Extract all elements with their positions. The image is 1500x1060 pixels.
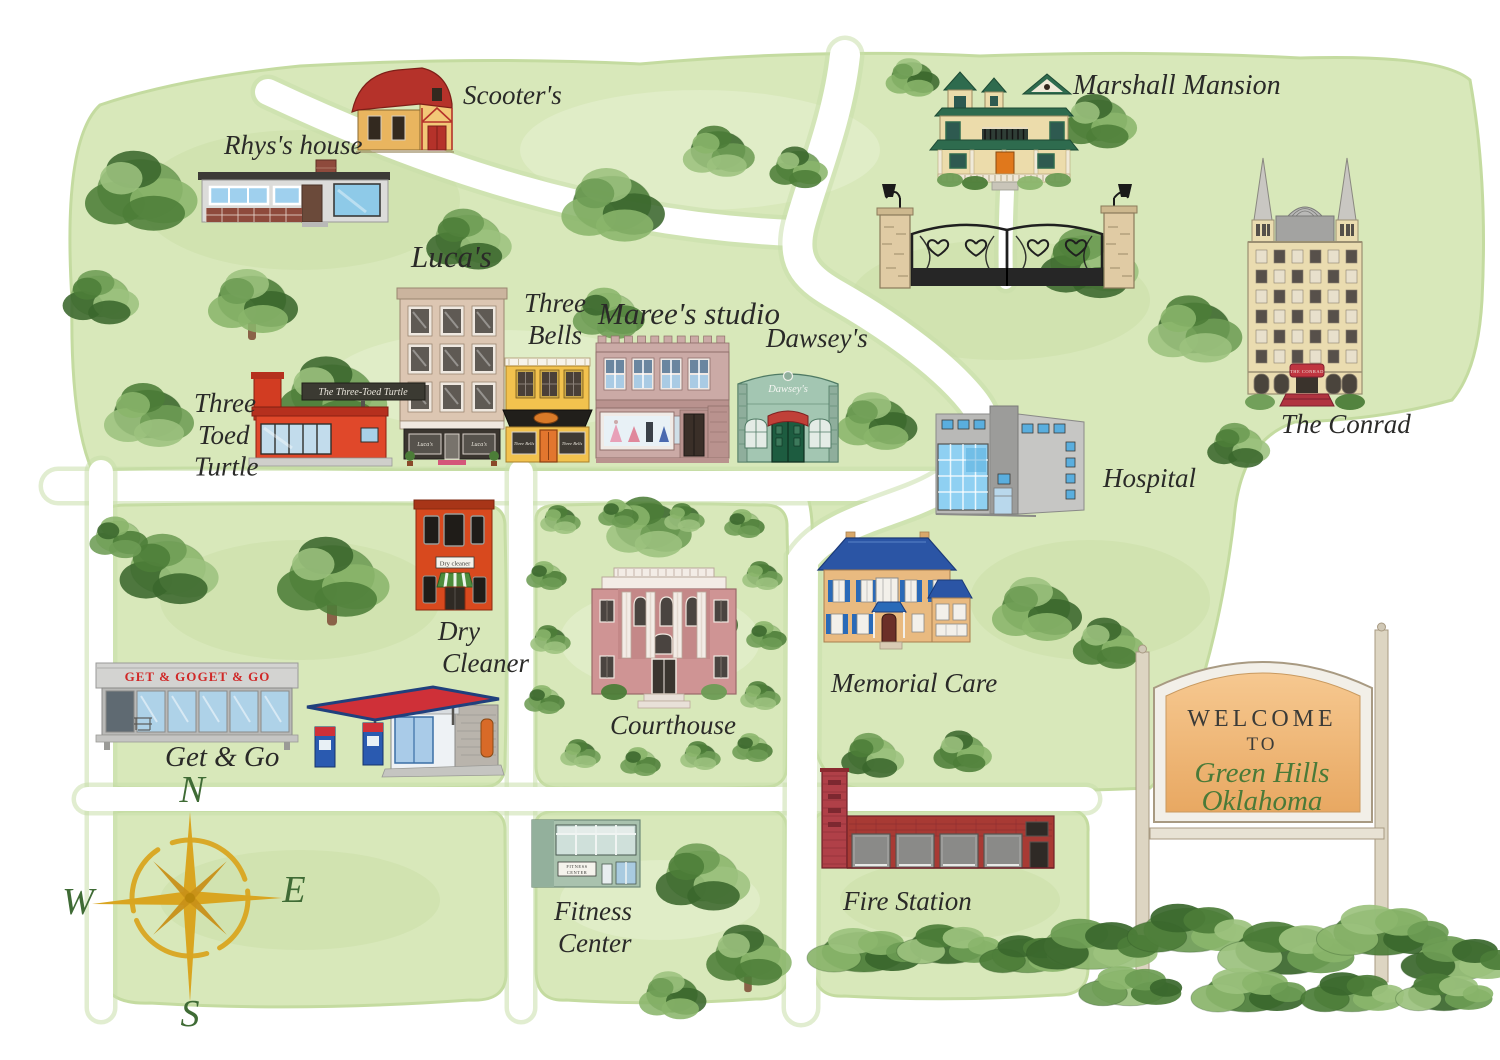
building-marshall-mansion: [930, 72, 1078, 190]
label-fitness-center: Fitness: [553, 896, 632, 926]
drycleaner-sign-text: Dry cleaner: [440, 561, 471, 568]
bush: [1396, 973, 1494, 1010]
green-hills-map: THE CONRADLuca'sLuca'sThree BellsThree B…: [0, 0, 1500, 1060]
label-fire-station: Fire Station: [842, 886, 972, 916]
building-dry-cleaner: Dry cleaner: [414, 500, 494, 610]
label-dry-cleaner: Dry: [437, 616, 480, 646]
label-courthouse: Courthouse: [610, 710, 736, 740]
building-dawseys: Dawsey's: [738, 372, 838, 463]
compass-n: N: [178, 769, 207, 811]
label-dry-cleaner: Cleaner: [442, 648, 529, 678]
bells-window-script: Three Bells: [562, 441, 583, 446]
lucas-window-script: Luca's: [470, 442, 487, 448]
label-three-toed-turtle: Toed: [198, 420, 250, 450]
label-marshall-mansion: Marshall Mansion: [1072, 70, 1281, 101]
lucas-window-script: Luca's: [416, 442, 433, 448]
getgo-sign-text: GET & GO: [198, 669, 271, 684]
building-get-and-go: GET & GOGET & GO: [96, 663, 298, 750]
label-fitness-center: Center: [558, 928, 632, 958]
compass-s: S: [181, 993, 200, 1035]
bells-window-script: Three Bells: [514, 441, 535, 446]
compass-e: E: [281, 869, 305, 911]
label-three-bells: Bells: [528, 320, 582, 350]
compass-w: W: [62, 881, 97, 923]
building-fitness-center: FITNESSCENTER: [532, 820, 640, 887]
label-get-and-go: Get & Go: [165, 741, 279, 773]
building-three-bells: Three BellsThree Bells: [503, 358, 592, 462]
fitness-sign-line: CENTER: [567, 870, 588, 875]
building-marees-studio: [596, 336, 729, 463]
getgo-sign-text: GET & GO: [125, 669, 198, 684]
building-courthouse: [592, 568, 736, 708]
label-the-conrad: The Conrad: [1281, 409, 1411, 439]
label-lucas: Luca's: [410, 239, 492, 274]
label-three-toed-turtle: Three: [194, 388, 256, 418]
building-hospital: [936, 406, 1084, 516]
label-three-bells: Three: [524, 288, 586, 318]
building-lucas: Luca'sLuca's: [397, 288, 507, 466]
label-scooters: Scooter's: [463, 80, 562, 110]
conrad-awning-text: THE CONRAD: [1290, 369, 1324, 374]
fitness-sign-line: FITNESS: [566, 864, 587, 869]
welcome-sign-line2: TO: [1247, 734, 1278, 755]
bush: [1079, 966, 1183, 1006]
label-dawseys: Dawsey's: [765, 323, 868, 353]
map-canvas: THE CONRADLuca'sLuca'sThree BellsThree B…: [0, 0, 1500, 1060]
label-rhys-house: Rhys's house: [223, 130, 363, 160]
bush: [1301, 972, 1405, 1012]
label-three-toed-turtle: Turtle: [194, 452, 259, 482]
dawseys-sign-text: Dawsey's: [767, 384, 808, 395]
welcome-sign-line4: Oklahoma: [1202, 785, 1323, 817]
welcome-sign-line1: WELCOME: [1187, 706, 1336, 732]
label-marees-studio: Maree's studio: [597, 296, 780, 331]
label-hospital: Hospital: [1102, 463, 1196, 493]
turtle-sign-text: The Three-Toed Turtle: [318, 387, 408, 398]
label-memorial-care: Memorial Care: [830, 668, 997, 698]
